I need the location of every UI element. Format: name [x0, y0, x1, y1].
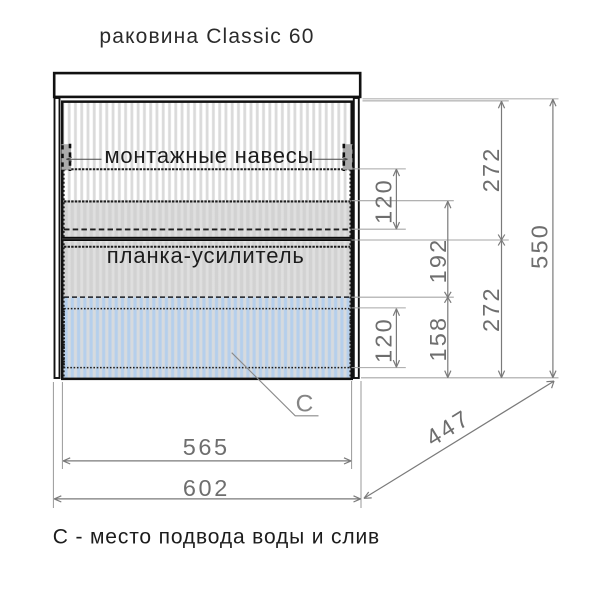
svg-text:565: 565 [183, 434, 230, 460]
svg-text:272: 272 [478, 286, 504, 332]
svg-text:158: 158 [425, 316, 451, 362]
svg-text:раковина Classic 60: раковина Classic 60 [99, 25, 314, 48]
svg-text:С - место подвода воды и слив: С - место подвода воды и слив [53, 525, 380, 548]
svg-text:120: 120 [371, 317, 397, 363]
svg-text:C: C [296, 391, 314, 418]
svg-text:272: 272 [478, 146, 504, 192]
svg-text:монтажные навесы: монтажные навесы [105, 143, 314, 168]
svg-text:550: 550 [527, 223, 553, 269]
svg-text:192: 192 [425, 238, 451, 284]
svg-text:120: 120 [371, 178, 397, 224]
svg-text:602: 602 [183, 475, 230, 501]
svg-text:планка-усилитель: планка-усилитель [107, 243, 305, 268]
